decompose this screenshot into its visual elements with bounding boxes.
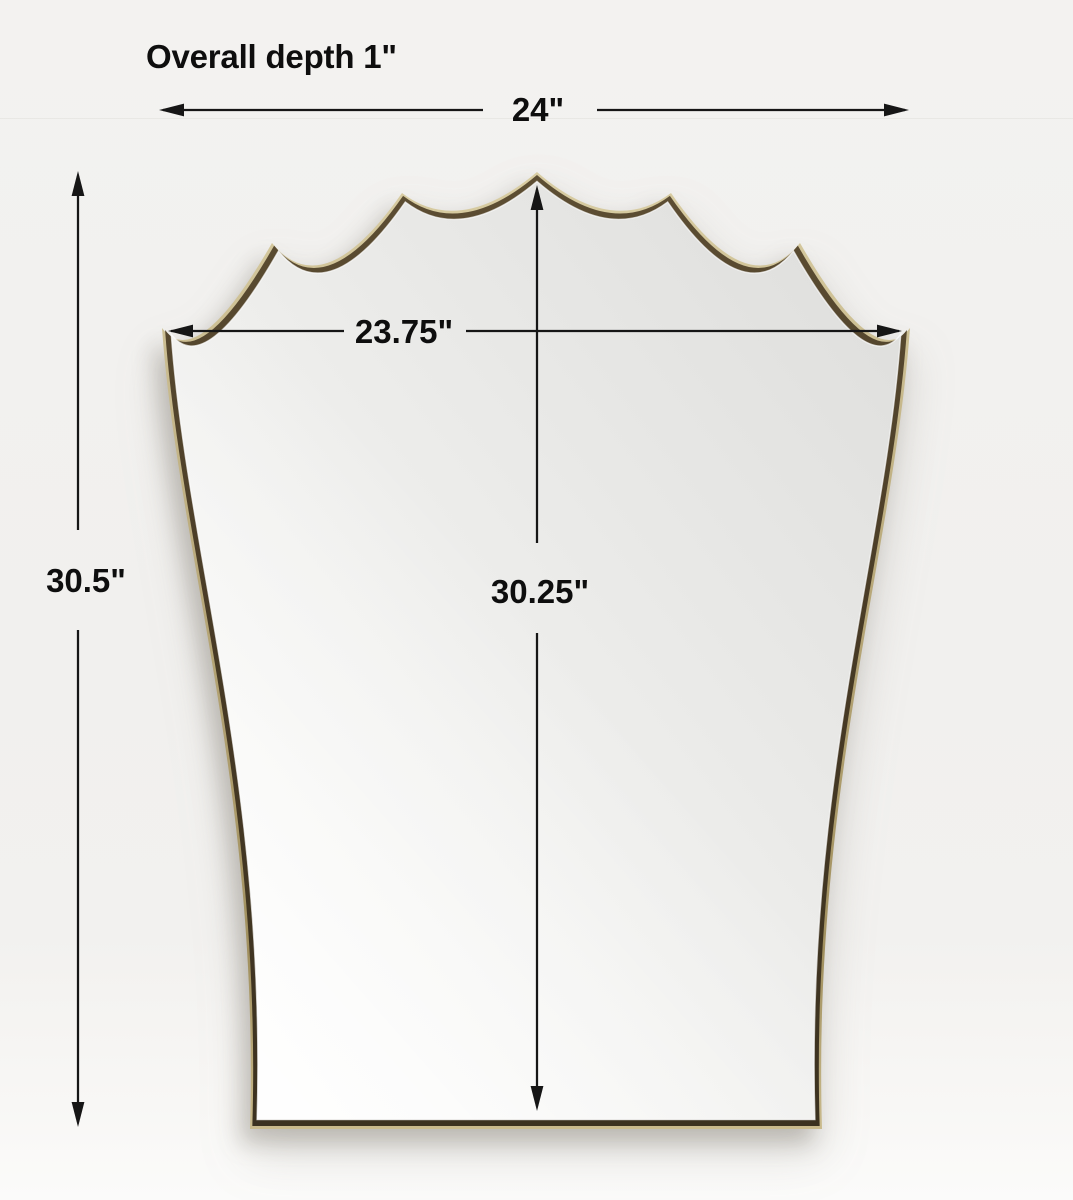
overall-height-label: 30.5" bbox=[46, 562, 126, 599]
dimension-diagram-svg: Overall depth 1" 24" 23.75" 30.5" 30.25" bbox=[0, 0, 1073, 1200]
overall-depth-label: Overall depth 1" bbox=[146, 38, 397, 75]
arrowhead-up-icon bbox=[72, 171, 85, 196]
arrowhead-right-icon bbox=[884, 104, 909, 117]
diagram-canvas: Overall depth 1" 24" 23.75" 30.5" 30.25" bbox=[0, 0, 1073, 1200]
arrowhead-left-icon bbox=[159, 104, 184, 117]
mirror-height-label: 30.25" bbox=[491, 573, 589, 610]
overall-width-label: 24" bbox=[512, 91, 564, 128]
arrowhead-down-icon bbox=[72, 1102, 85, 1127]
mirror-width-label: 23.75" bbox=[355, 313, 453, 350]
arrowhead-right-icon bbox=[877, 325, 902, 338]
